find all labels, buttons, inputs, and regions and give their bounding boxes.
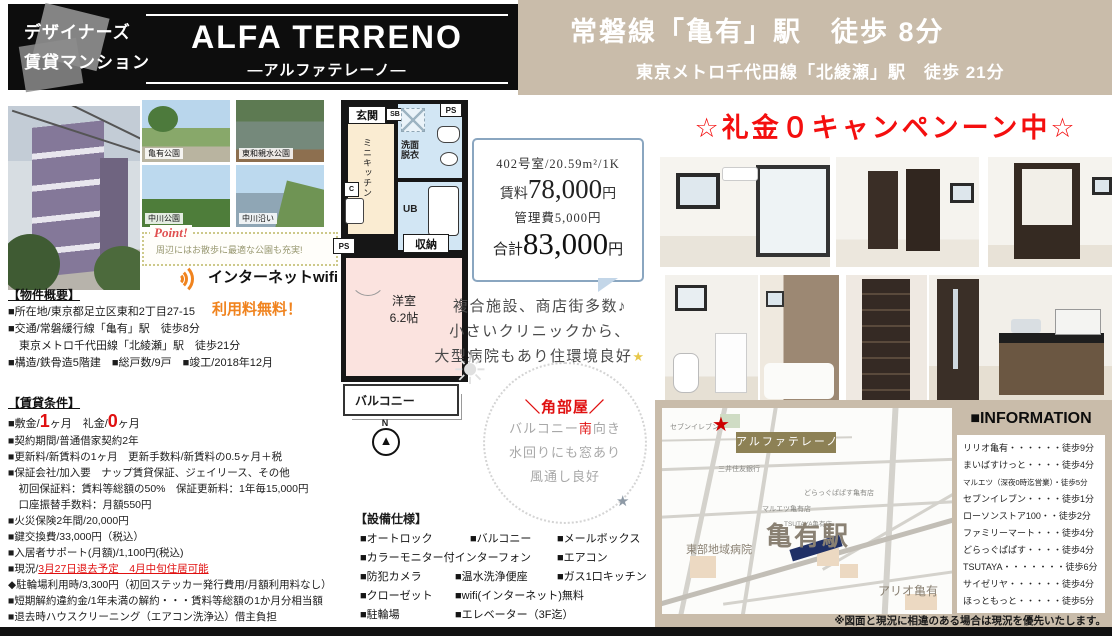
info-item: ローソンストア100・・徒歩2分 bbox=[963, 508, 1099, 525]
equipment-item: ■バルコニー bbox=[470, 530, 531, 546]
unit-spec: 402号室/20.59m²/1K bbox=[474, 153, 642, 172]
corner-line3: 風通し良好 bbox=[485, 465, 645, 489]
equipment-row: ■防犯カメラ ■温水洗浄便座 ■ガス1口キッチン bbox=[345, 568, 667, 587]
unit-bath-label: UB bbox=[403, 204, 417, 215]
sun-icon: ☀ bbox=[452, 348, 488, 394]
window bbox=[676, 173, 720, 209]
env-line1: 複合施設、商店街多数♪ bbox=[420, 294, 660, 319]
kitchen-cabinets bbox=[999, 343, 1104, 395]
info-item: TSUTAYA・・・・・・・徒歩6分 bbox=[963, 559, 1099, 576]
balcony-label: バルコニー bbox=[355, 392, 415, 409]
equipment-item: ■温水洗浄便座 bbox=[455, 568, 528, 584]
kitchen-sink bbox=[345, 198, 364, 224]
deposit-months: 1 bbox=[40, 411, 50, 431]
corner-l1a: バルコニー bbox=[509, 421, 579, 436]
pipe-space-label: PS bbox=[440, 103, 462, 117]
total-line: 合計83,000円 bbox=[474, 226, 642, 262]
access-main: 常磐線「亀有」駅 徒歩 8分 bbox=[570, 10, 945, 49]
door-swing-arc bbox=[350, 260, 386, 296]
photo-caption: 東和親水公園 bbox=[239, 148, 293, 159]
photo-caption: 亀有公園 bbox=[145, 148, 183, 159]
equipment-row: ■駐輪場 ■エレベーター（3F迄） bbox=[345, 606, 667, 625]
washroom-label-1: 洗面 bbox=[401, 140, 419, 150]
map-label-seven: セブンイレブン bbox=[670, 422, 719, 432]
terms-line: ■鍵交換費/33,000円（税込） bbox=[8, 529, 343, 545]
equipment-row: ■カラーモニター付インターフォン ■エアコン bbox=[345, 549, 667, 568]
corner-line2: 水回りにも窓あり bbox=[485, 441, 645, 465]
equipment-title: 【設備仕様】 bbox=[345, 510, 667, 530]
overview-line: ■交通/常磐緩行線「亀有」駅 徒歩8分 bbox=[8, 320, 343, 337]
sink bbox=[1011, 319, 1041, 333]
corner-title: ＼角部屋／ bbox=[485, 396, 645, 417]
toilet bbox=[673, 353, 699, 393]
equipment-row: ■クローゼット ■wifi(インターネット)無料 bbox=[345, 587, 667, 606]
overview-title: 【物件概要】 bbox=[8, 286, 343, 303]
photo-interior-closet bbox=[988, 157, 1112, 267]
photo-park-4: 中川沿い bbox=[236, 165, 324, 227]
point-box: Point! 周辺にはお散歩に最適な公園も充実! bbox=[142, 232, 338, 266]
photo-caption: 中川公園 bbox=[145, 213, 183, 224]
deposit-line: ■敷金/1ヶ月 礼金/0ヶ月 bbox=[8, 411, 343, 433]
header-title-box: デザイナーズ 賃貸マンション ALFA TERRENO ―アルファテレーノ― bbox=[8, 4, 518, 90]
photo-interior-living bbox=[660, 157, 830, 267]
status-line: ■現況/3月27日退去予定 4月中旬住居可能 bbox=[8, 561, 343, 577]
rent-unit: 円 bbox=[602, 185, 616, 201]
tagline-line2: 賃貸マンション bbox=[24, 48, 150, 73]
equipment-item: ■オートロック bbox=[360, 530, 433, 546]
corner-l1b-south: 南 bbox=[579, 421, 593, 436]
compass-icon: N ▲ bbox=[372, 418, 398, 456]
terms-line: ■更新料/新賃料の1ヶ月 更新手数料/新賃料の0.5ヶ月＋税 bbox=[8, 449, 343, 465]
header-access-band: 常磐線「亀有」駅 徒歩 8分 東京メトロ千代田線「北綾瀬」駅 徒歩 21分 bbox=[518, 0, 1112, 95]
info-item: マルエツ（深夜0時迄営業）・徒歩5分 bbox=[963, 474, 1099, 491]
info-item: ファミリーマート・・・徒歩4分 bbox=[963, 525, 1099, 542]
point-label: Point! bbox=[150, 225, 192, 241]
bathtub bbox=[764, 363, 834, 399]
point-text: 周辺にはお散歩に最適な公園も充実! bbox=[156, 243, 303, 256]
bathtub bbox=[428, 186, 459, 236]
equipment-item: ■防犯カメラ bbox=[360, 568, 422, 584]
terms-line: 初回保証料：賃料等総額の50% 保証更新料：1年毎15,000円 bbox=[8, 481, 343, 497]
deposit-suffix: ヶ月 bbox=[118, 418, 140, 430]
disclaimer: ※図面と現況に相違のある場合は現況を優先いたします。 bbox=[655, 613, 1106, 628]
photo-interior-doors bbox=[836, 157, 979, 267]
terms-line: ■退去時ハウスクリーニング（エアコン洗浄込）借主負担 bbox=[8, 609, 343, 625]
equipment-item: ■カラーモニター付インターフォン bbox=[360, 549, 531, 565]
sparkle-icon: ★ bbox=[632, 349, 645, 364]
photo-caption: 中川沿い bbox=[239, 213, 277, 224]
map-label-ario: アリオ亀有 bbox=[878, 582, 938, 599]
terms-line: ■契約期間/普通借家契約2年 bbox=[8, 433, 343, 449]
total-label: 合計 bbox=[493, 241, 523, 258]
overview-line: ■所在地/東京都足立区東和2丁目27-15 bbox=[8, 303, 343, 320]
corner-line1: バルコニー南向き bbox=[485, 417, 645, 441]
washroom-label-2: 脱衣 bbox=[401, 150, 419, 160]
divider bbox=[146, 82, 508, 84]
star-deco-icon: ★ bbox=[616, 492, 629, 510]
washroom-label: 洗面 脱衣 bbox=[401, 140, 419, 160]
info-item: どらっぐぱぱす・・・・徒歩4分 bbox=[963, 542, 1099, 559]
total-unit: 円 bbox=[608, 241, 623, 258]
deposit-mid: ヶ月 礼金/ bbox=[50, 418, 108, 430]
key-money-months: 0 bbox=[108, 411, 118, 431]
tree bbox=[148, 106, 178, 132]
rental-flyer: 常磐線「亀有」駅 徒歩 8分 東京メトロ千代田線「北綾瀬」駅 徒歩 21分 デザ… bbox=[0, 0, 1112, 636]
door-slit bbox=[953, 289, 958, 369]
terms-line: ■入居者サポート(月額)/1,100円(税込) bbox=[8, 545, 343, 561]
equipment-section: 【設備仕様】 ■オートロック ■バルコニー ■メールボックス ■カラーモニター付… bbox=[345, 510, 667, 636]
map-road bbox=[662, 458, 952, 472]
information-title: ■INFORMATION bbox=[957, 410, 1105, 428]
shoe-shelf bbox=[862, 279, 910, 401]
equipment-row: ■オートロック ■バルコニー ■メールボックス bbox=[345, 530, 667, 549]
entrance-label: 玄関 bbox=[348, 106, 386, 124]
window bbox=[675, 285, 707, 311]
pipe-space-left-label: PS bbox=[333, 238, 355, 254]
window bbox=[1092, 177, 1112, 195]
river-bank bbox=[275, 180, 324, 227]
tagline-line1: デザイナーズ bbox=[24, 18, 131, 43]
photo-kitchen bbox=[929, 275, 1112, 405]
window bbox=[766, 291, 784, 307]
status-prefix: ■現況/ bbox=[8, 563, 38, 575]
info-item: サイゼリヤ・・・・・・徒歩4分 bbox=[963, 576, 1099, 593]
map-info-panel: ★ アルファテレーノ セブンイレブン 三井住友銀行 マルエツ亀有店 どらっぐぱぱ… bbox=[655, 400, 1112, 628]
terms-title: 【賃貸条件】 bbox=[8, 394, 343, 411]
gas-stove bbox=[1055, 309, 1101, 335]
compass-needle: ▲ bbox=[372, 428, 400, 456]
map-block-hospital bbox=[690, 556, 716, 578]
photo-park-1: 亀有公園 bbox=[142, 100, 230, 162]
balcony-window bbox=[756, 165, 830, 257]
divider bbox=[146, 14, 508, 16]
campaign-banner: ☆礼金０キャンペンーン中☆ bbox=[660, 106, 1112, 145]
wifi-label: インターネットwifi bbox=[208, 266, 338, 287]
access-sub: 東京メトロ千代田線「北綾瀬」駅 徒歩 21分 bbox=[636, 58, 1005, 83]
terms-line: 口座振替手数料：月額550円 bbox=[8, 497, 343, 513]
photo-park-2: 東和親水公園 bbox=[236, 100, 324, 162]
building-name: ALFA TERRENO bbox=[146, 19, 508, 56]
fridge-space-label: C bbox=[344, 182, 359, 197]
equipment-item: ■メールボックス bbox=[557, 530, 640, 546]
info-item: まいばすけっと・・・・徒歩4分 bbox=[963, 457, 1099, 474]
toilet bbox=[437, 126, 460, 143]
map-label-hospital: 東部地域病院 bbox=[686, 541, 752, 557]
photo-park-3: 中川公園 bbox=[142, 165, 230, 227]
overview-section: 【物件概要】 ■所在地/東京都足立区東和2丁目27-15 ■交通/常磐緩行線「亀… bbox=[8, 286, 343, 371]
info-item: ほっともっと・・・・・徒歩5分 bbox=[963, 593, 1099, 610]
map-property-label: アルファテレーノ bbox=[736, 432, 836, 453]
total-value: 83,000 bbox=[523, 226, 608, 261]
door bbox=[937, 279, 979, 401]
map-label-bank: 三井住友銀行 bbox=[718, 464, 760, 474]
info-item: セブンイレブン・・・・徒歩1分 bbox=[963, 491, 1099, 508]
equipment-item: ■クローゼット bbox=[360, 587, 433, 603]
photo-toilet bbox=[665, 275, 758, 405]
equipment-item: ■駐輪場 bbox=[360, 606, 400, 622]
terms-section: 【賃貸条件】 ■敷金/1ヶ月 礼金/0ヶ月 ■契約期間/普通借家契約2年 ■更新… bbox=[8, 394, 343, 625]
bubble-tail bbox=[598, 278, 618, 292]
information-box: リリオ亀有・・・・・・徒歩9分 まいばすけっと・・・・徒歩4分 マルエツ（深夜0… bbox=[957, 435, 1105, 613]
photo-bathroom bbox=[760, 275, 839, 405]
equipment-item: ■エアコン bbox=[557, 549, 608, 565]
price-bubble: 402号室/20.59m²/1K 賃料78,000円 管理費5,000円 合計8… bbox=[472, 138, 644, 282]
building-kana: ―アルファテレーノ― bbox=[146, 59, 508, 80]
terms-line: ◆駐輪場利用時/3,300円（初回ステッカー発行費用/月額利用料なし） bbox=[8, 577, 343, 593]
map-block bbox=[840, 564, 858, 578]
equipment-item: ■ガス1口キッチン bbox=[557, 568, 647, 584]
compass-n: N bbox=[372, 418, 398, 428]
vanity bbox=[715, 333, 747, 393]
storage-label: 収納 bbox=[403, 234, 449, 253]
window bbox=[950, 183, 974, 203]
footer-bar bbox=[0, 627, 1112, 636]
equipment-item: ■wifi(インターネット)無料 bbox=[455, 587, 584, 603]
terms-line: ■保証会社/加入要 ナップ賃貸保証、ジェイリース、その他 bbox=[8, 465, 343, 481]
rent-value: 78,000 bbox=[528, 174, 602, 204]
equipment-item: ■エレベーター（3F迄） bbox=[455, 606, 573, 622]
status-red-text: 3月27日退去予定 4月中旬住居可能 bbox=[38, 563, 208, 575]
closet-inside bbox=[1022, 169, 1072, 225]
terms-line: ■短期解約違約金/1年未満の解約・・・賃料等総額の1か月分相当額 bbox=[8, 593, 343, 609]
washer-space-symbol bbox=[401, 108, 425, 132]
rent-label: 賃料 bbox=[500, 185, 528, 201]
washbasin bbox=[440, 152, 458, 166]
balcony-box: バルコニー bbox=[343, 384, 459, 416]
map-label-station: 亀有駅 bbox=[766, 516, 850, 553]
photo-shoe-cabinet bbox=[846, 275, 927, 405]
overview-line: ■構造/鉄骨造5階建 ■総戸数/9戸 ■竣工/2018年12月 bbox=[8, 354, 343, 371]
door bbox=[868, 171, 898, 249]
map-label-drugstore: どらっぐぱぱす亀有店 bbox=[804, 488, 874, 498]
photo-building-exterior bbox=[8, 106, 140, 290]
deposit-prefix: ■敷金/ bbox=[8, 418, 40, 430]
env-line2: 小さいクリニックから、 bbox=[420, 319, 660, 344]
closet-door bbox=[906, 169, 940, 251]
terms-line: ■火災保険2年間/20,000円 bbox=[8, 513, 343, 529]
info-item: リリオ亀有・・・・・・徒歩9分 bbox=[963, 440, 1099, 457]
air-conditioner bbox=[722, 167, 758, 181]
map-label-maruetsu: マルエツ亀有店 bbox=[762, 504, 811, 514]
area-map: ★ アルファテレーノ セブンイレブン 三井住友銀行 マルエツ亀有店 どらっぐぱぱ… bbox=[662, 408, 952, 614]
rent-line: 賃料78,000円 bbox=[474, 174, 642, 205]
overview-line: 東京メトロ千代田線「北綾瀬」駅 徒歩21分 bbox=[8, 337, 343, 354]
corner-l1c: 向き bbox=[593, 421, 621, 436]
management-fee: 管理費5,000円 bbox=[474, 207, 642, 226]
